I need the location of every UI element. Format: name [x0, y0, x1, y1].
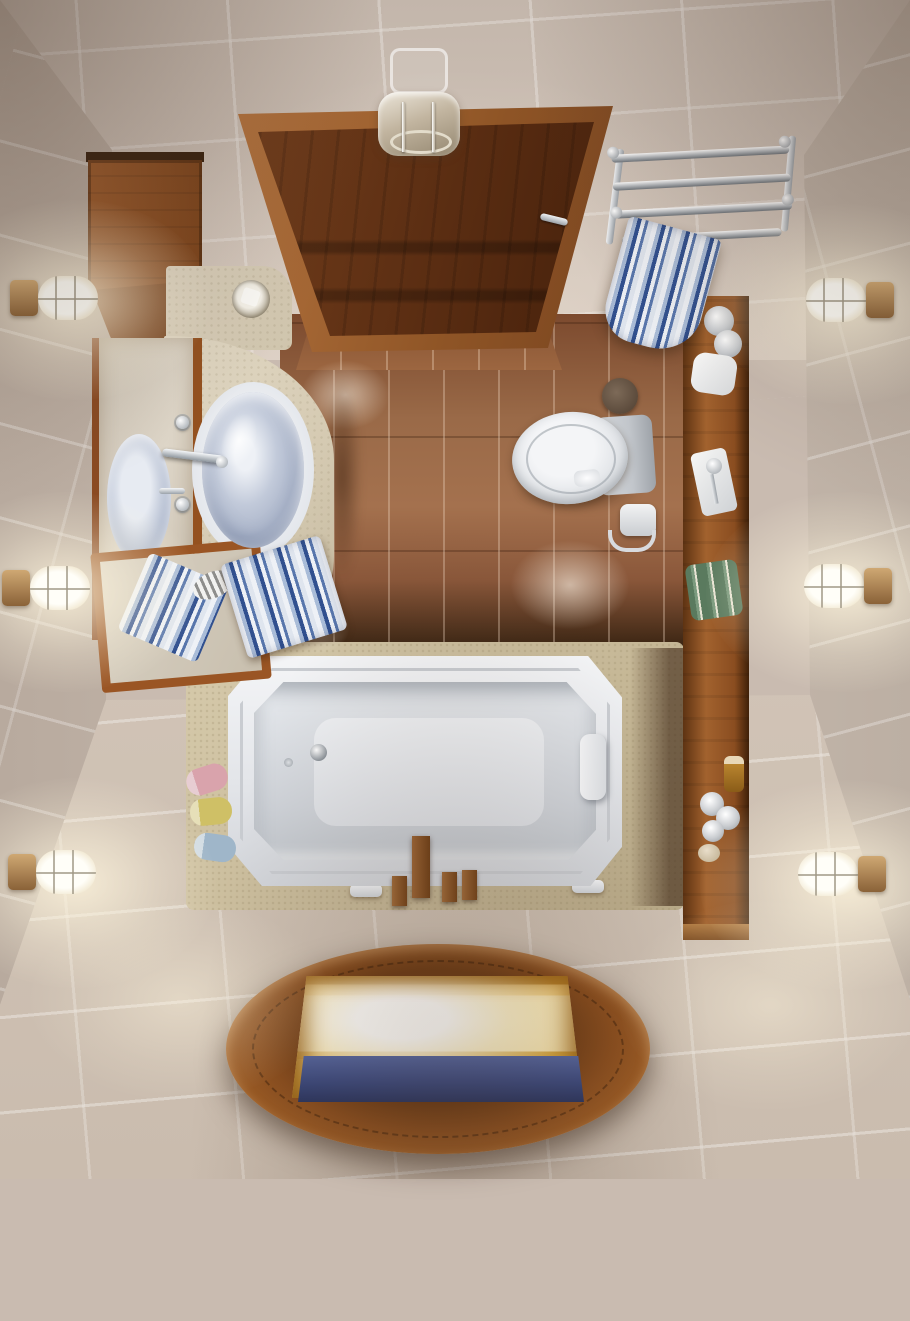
razor [706, 458, 722, 474]
wooden-tub-handle [462, 870, 477, 900]
chrome-ring [390, 130, 452, 154]
toilet-seat-highlight [573, 469, 601, 488]
lamp-bronze-base [10, 280, 38, 316]
lamp-glass-capsule [30, 566, 90, 610]
wooden-tub-handle [442, 872, 457, 902]
overflow-drain [284, 758, 293, 767]
ceiling-fixture [378, 48, 464, 162]
lamp-glass-capsule [806, 278, 866, 322]
rack-bar [614, 201, 792, 218]
rack-bar [611, 146, 789, 163]
amber-bottle [724, 756, 744, 792]
lamp-bronze-base [864, 568, 892, 604]
pebble-soap [698, 844, 720, 862]
headrest-pillow [580, 734, 606, 800]
floor-light-pool [620, 900, 910, 1110]
bathroom-top-view-photo: { "scene": { "description": "3D rendered… [0, 0, 910, 1179]
rack-valve-knob [782, 193, 795, 206]
wall-lamp [804, 564, 892, 608]
chrome-knob [702, 820, 724, 842]
soap-bar-dish [689, 351, 738, 397]
floor-hatch [226, 944, 650, 1154]
faucet-cross-handle [176, 416, 189, 429]
lamp-glass-capsule [804, 564, 864, 608]
hatch-water [298, 1056, 584, 1102]
chrome-pin [432, 102, 435, 152]
toilet-brush [602, 378, 638, 414]
wooden-tub-handle [392, 876, 407, 906]
toilet-lid-line [526, 424, 616, 494]
faucet-spout-tip [216, 456, 228, 468]
wall-lamp [798, 852, 886, 896]
wall-lamp [806, 278, 894, 322]
wall-lamp [2, 566, 90, 610]
lamp-glass-capsule [36, 850, 96, 894]
green-rolled-towels [684, 559, 743, 622]
glass-shelf [390, 48, 448, 94]
wall-lamp [10, 276, 98, 320]
wooden-tub-spout [412, 836, 430, 898]
faucet-cross-handle [176, 498, 189, 511]
lamp-bronze-base [8, 854, 36, 890]
vessel-sink [202, 392, 304, 548]
lamp-glass-capsule [798, 852, 858, 896]
tub-floor [314, 718, 544, 826]
wall-lamp [8, 850, 96, 894]
chrome-pin [402, 102, 405, 152]
glass-cup [232, 280, 270, 318]
toilet-group [512, 378, 672, 548]
rack-bar [613, 173, 791, 190]
tub-drain [310, 744, 327, 761]
shelf-end-face [683, 924, 749, 940]
mirror-reflection-towel [117, 552, 229, 663]
mirror-reflection-faucet [159, 488, 185, 494]
lamp-bronze-base [2, 570, 30, 606]
lamp-bronze-base [866, 282, 894, 318]
lamp-bronze-base [858, 856, 886, 892]
lamp-glass-capsule [38, 276, 98, 320]
